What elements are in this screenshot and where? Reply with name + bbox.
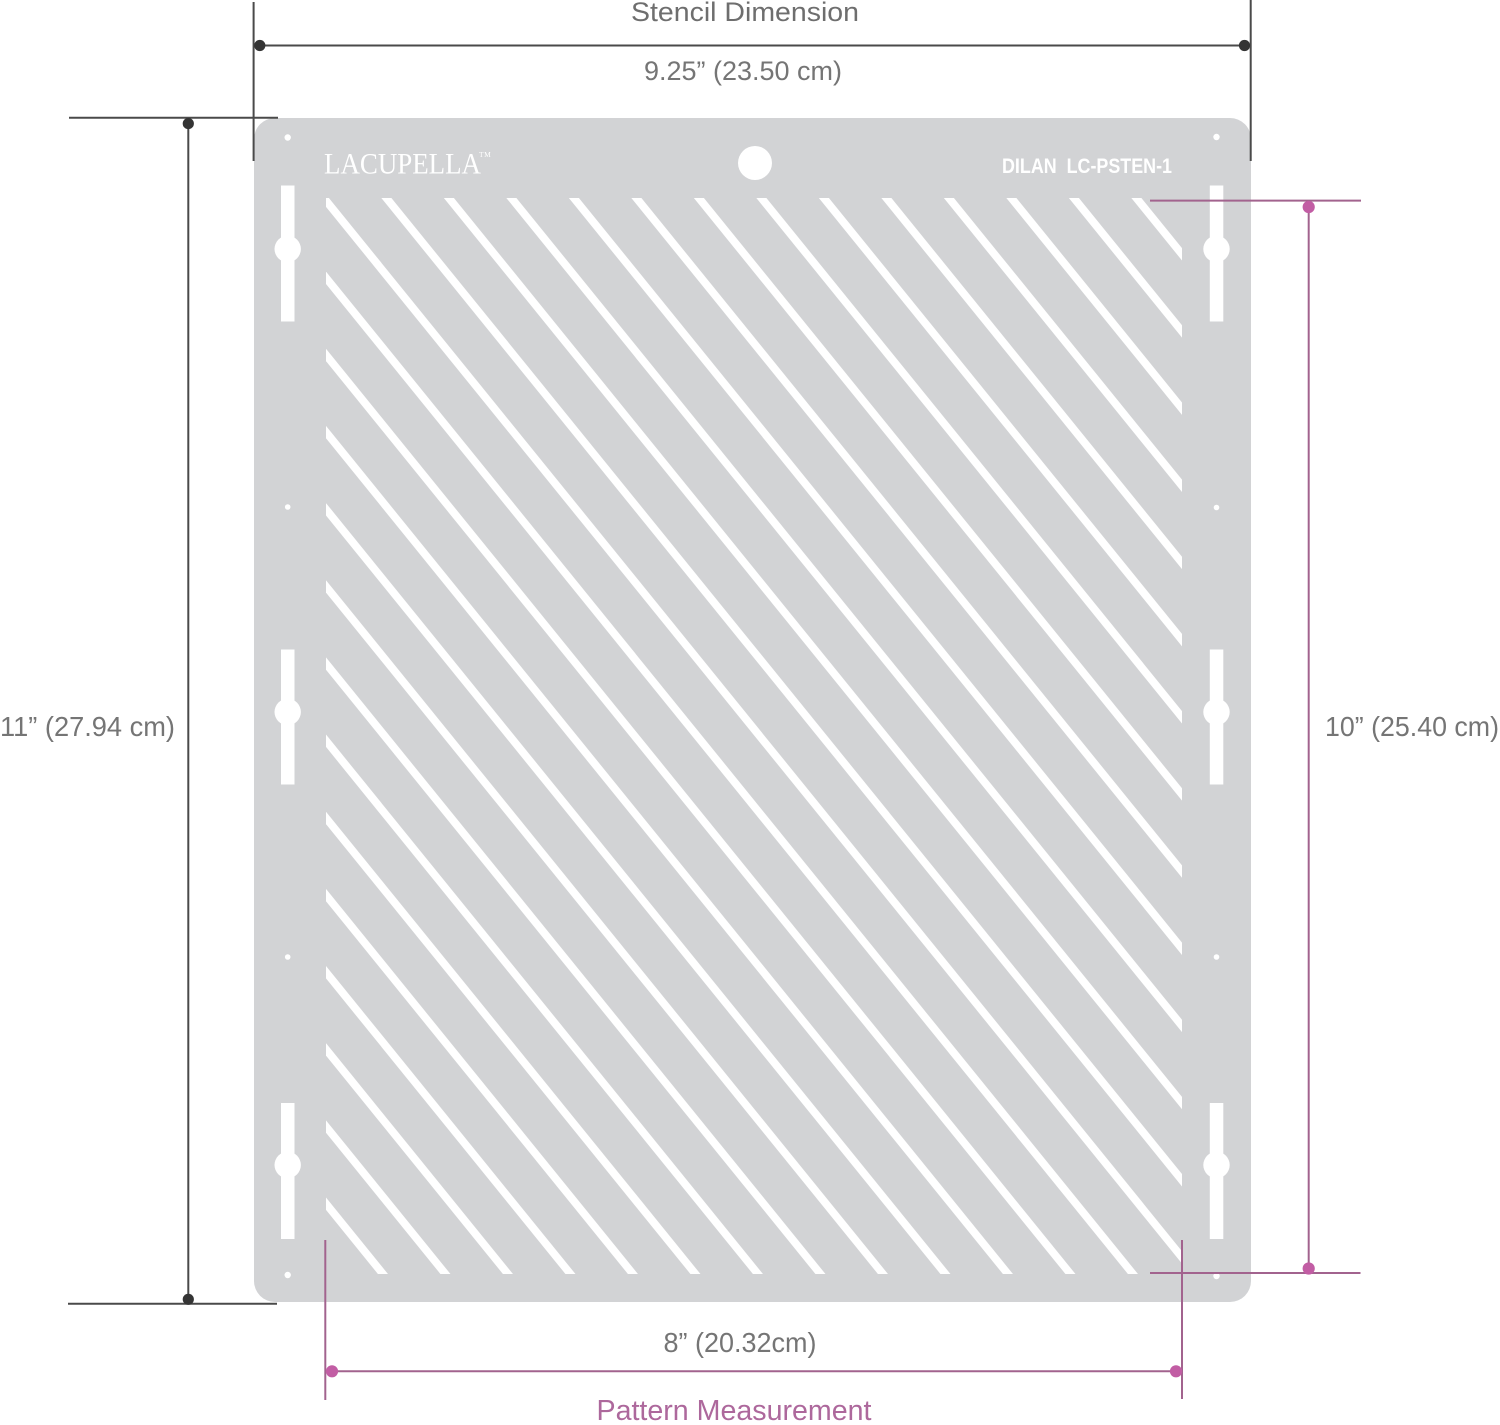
svg-text:DILAN LC-PSTEN-1: DILAN LC-PSTEN-1 xyxy=(1002,155,1172,178)
svg-text:LACUPELLA: LACUPELLA xyxy=(324,148,481,181)
svg-text:TM: TM xyxy=(479,150,491,159)
svg-text:10” (25.40 cm): 10” (25.40 cm) xyxy=(1325,711,1499,742)
svg-text:9.25” (23.50 cm): 9.25” (23.50 cm) xyxy=(644,56,842,86)
svg-text:Stencil Dimension: Stencil Dimension xyxy=(631,0,859,27)
svg-text:Pattern Measurement: Pattern Measurement xyxy=(597,1395,872,1425)
svg-text:11” (27.94 cm): 11” (27.94 cm) xyxy=(0,711,175,742)
svg-text:8” (20.32cm): 8” (20.32cm) xyxy=(664,1327,817,1358)
